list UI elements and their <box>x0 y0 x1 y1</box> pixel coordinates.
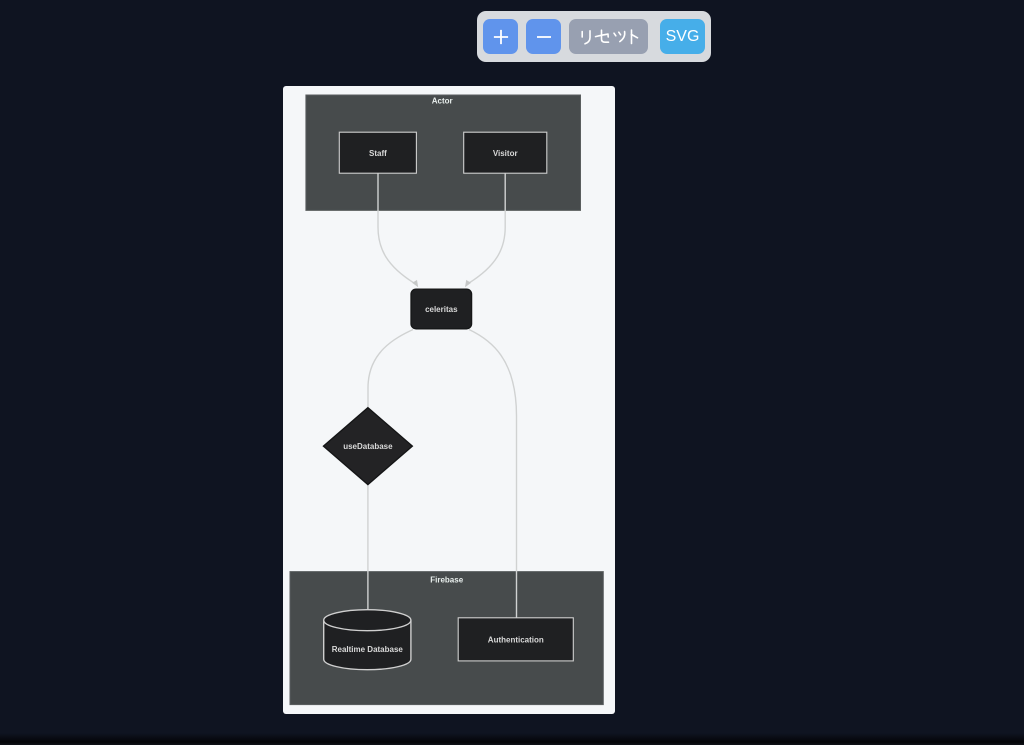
svg-text:Realtime Database: Realtime Database <box>332 645 404 654</box>
svg-text:Firebase: Firebase <box>430 576 463 585</box>
svg-text:Visitor: Visitor <box>493 149 518 158</box>
svg-text:Staff: Staff <box>369 149 387 158</box>
svg-text:Actor: Actor <box>432 97 453 106</box>
svg-text:useDatabase: useDatabase <box>343 442 393 451</box>
svg-text:Authentication: Authentication <box>488 636 544 645</box>
svg-text:celeritas: celeritas <box>425 305 458 314</box>
